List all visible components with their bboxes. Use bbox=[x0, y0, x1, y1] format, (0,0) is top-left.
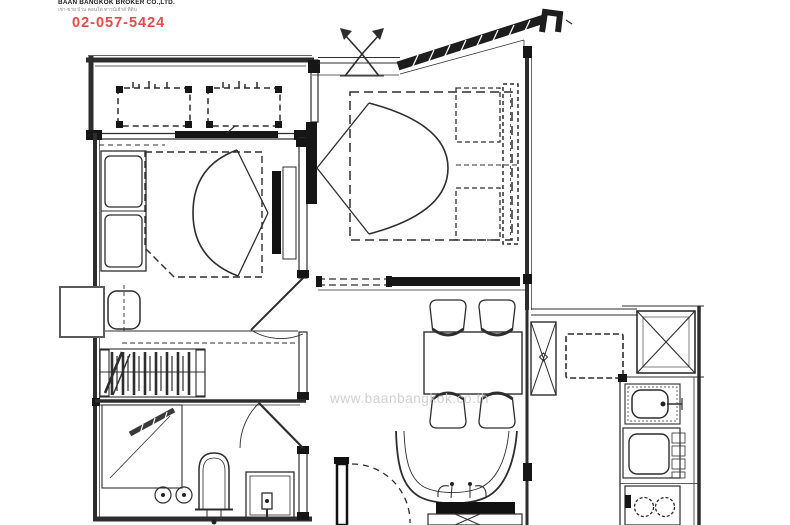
floor-plan-page: BAAN BANGKOK BROKER CO.,LTD. เช่า-ขาย บ้… bbox=[0, 0, 790, 525]
refrigerator bbox=[566, 334, 623, 378]
swing-door bbox=[251, 278, 303, 339]
broker-logo-block: BAAN BANGKOK BROKER CO.,LTD. เช่า-ขาย บ้… bbox=[58, 0, 258, 31]
tv-panel bbox=[272, 167, 296, 259]
wardrobe bbox=[101, 151, 146, 271]
stool bbox=[108, 285, 140, 333]
structural-shaft bbox=[622, 306, 704, 377]
shower bbox=[102, 405, 192, 503]
toilet bbox=[195, 453, 233, 525]
balcony bbox=[116, 81, 282, 133]
dining-area bbox=[424, 300, 522, 428]
double-bed bbox=[145, 150, 268, 277]
ac-unit bbox=[206, 81, 282, 133]
wash-basin bbox=[246, 472, 294, 519]
sink bbox=[625, 384, 682, 424]
sofa bbox=[396, 431, 517, 503]
swing-door bbox=[240, 403, 303, 448]
stove bbox=[625, 486, 680, 525]
bedroom-2 bbox=[99, 145, 303, 339]
floor-plan-drawing bbox=[0, 0, 790, 525]
phone-number: 02-057-5424 bbox=[72, 16, 258, 31]
pillows bbox=[456, 88, 518, 240]
company-name: BAAN BANGKOK BROKER CO.,LTD. bbox=[58, 0, 258, 7]
outer-walls bbox=[86, 12, 572, 525]
living-area bbox=[334, 431, 522, 525]
bathroom bbox=[102, 403, 303, 525]
kitchen bbox=[531, 306, 704, 525]
dining-chair bbox=[430, 300, 466, 335]
ac-ledge bbox=[60, 287, 104, 337]
double-bed bbox=[317, 92, 512, 240]
ac-unit bbox=[116, 81, 192, 128]
dining-table bbox=[424, 332, 522, 394]
company-subtitle: เช่า-ขาย บ้าน คอนโด ทาวน์เฮ้าส์ ที่ดิน bbox=[58, 8, 258, 13]
watermark-text: www.baanbangkok.co.th bbox=[330, 391, 489, 406]
dining-chair bbox=[479, 300, 515, 335]
headboard bbox=[503, 84, 518, 244]
counter bbox=[620, 428, 699, 484]
service-shaft bbox=[531, 322, 556, 395]
clothes-rail bbox=[100, 349, 205, 397]
direction-arrows-icon bbox=[340, 28, 384, 76]
entrance-door bbox=[334, 457, 410, 525]
master-bedroom bbox=[317, 84, 518, 244]
tv-console bbox=[428, 502, 522, 525]
